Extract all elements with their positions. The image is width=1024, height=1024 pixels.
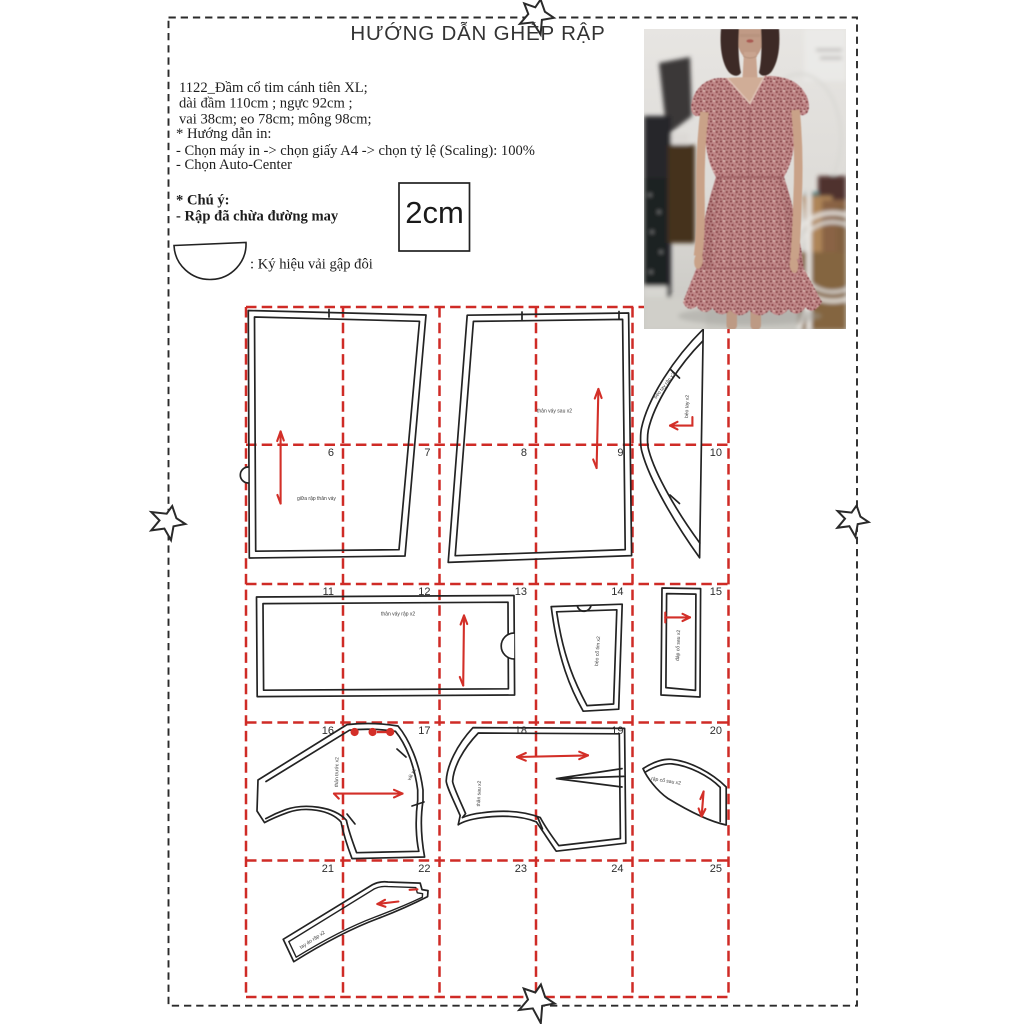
svg-text:19: 19 <box>611 725 623 737</box>
svg-text:- Chọn Auto-Center: - Chọn Auto-Center <box>176 157 292 173</box>
svg-text:16: 16 <box>322 725 334 737</box>
svg-text:dài đầm 110cm ; ngực 92cm ;: dài đầm 110cm ; ngực 92cm ; <box>179 96 353 112</box>
svg-text:10: 10 <box>710 447 722 459</box>
svg-text:* Hướng dẫn in:: * Hướng dẫn in: <box>176 126 271 142</box>
svg-text:21: 21 <box>322 863 334 875</box>
svg-text:* Chú ý:: * Chú ý: <box>176 193 230 209</box>
svg-text:thân sau x2: thân sau x2 <box>476 780 483 806</box>
svg-text:1122_Đầm cổ tim cánh tiên XL;: 1122_Đầm cổ tim cánh tiên XL; <box>179 80 368 96</box>
svg-text:: Ký hiệu vải gập đôi: : Ký hiệu vải gập đôi <box>250 257 373 273</box>
svg-text:17: 17 <box>418 725 430 737</box>
svg-text:9: 9 <box>617 447 623 459</box>
svg-text:rập cổ sau x2: rập cổ sau x2 <box>651 775 682 787</box>
svg-text:6: 6 <box>328 447 334 459</box>
svg-text:8: 8 <box>521 447 527 459</box>
svg-text:2cm: 2cm <box>405 195 464 230</box>
svg-text:thân trước x2: thân trước x2 <box>334 757 341 787</box>
svg-text:24: 24 <box>611 863 623 875</box>
svg-text:13: 13 <box>515 586 527 598</box>
svg-text:thân váy sau x2: thân váy sau x2 <box>537 409 572 415</box>
svg-text:bèo cổ tim x2: bèo cổ tim x2 <box>593 636 602 666</box>
svg-text:giữa rập thân váy: giữa rập thân váy <box>297 496 336 502</box>
svg-text:15: 15 <box>710 586 722 598</box>
svg-text:7: 7 <box>424 447 430 459</box>
svg-text:HƯỚNG DẪN GHÉP RẬP: HƯỚNG DẪN GHÉP RẬP <box>350 22 605 45</box>
svg-text:18: 18 <box>515 725 527 737</box>
svg-text:23: 23 <box>515 863 527 875</box>
svg-text:bèo tay x2: bèo tay x2 <box>684 395 691 418</box>
svg-text:25: 25 <box>710 863 722 875</box>
svg-text:22: 22 <box>418 863 430 875</box>
svg-text:- Rập đã chừa đường may: - Rập đã chừa đường may <box>176 209 339 225</box>
svg-text:đáp cổ sau x2: đáp cổ sau x2 <box>674 629 682 661</box>
svg-text:thân váy rập x2: thân váy rập x2 <box>381 612 415 618</box>
svg-text:20: 20 <box>710 725 722 737</box>
svg-text:14: 14 <box>611 586 623 598</box>
